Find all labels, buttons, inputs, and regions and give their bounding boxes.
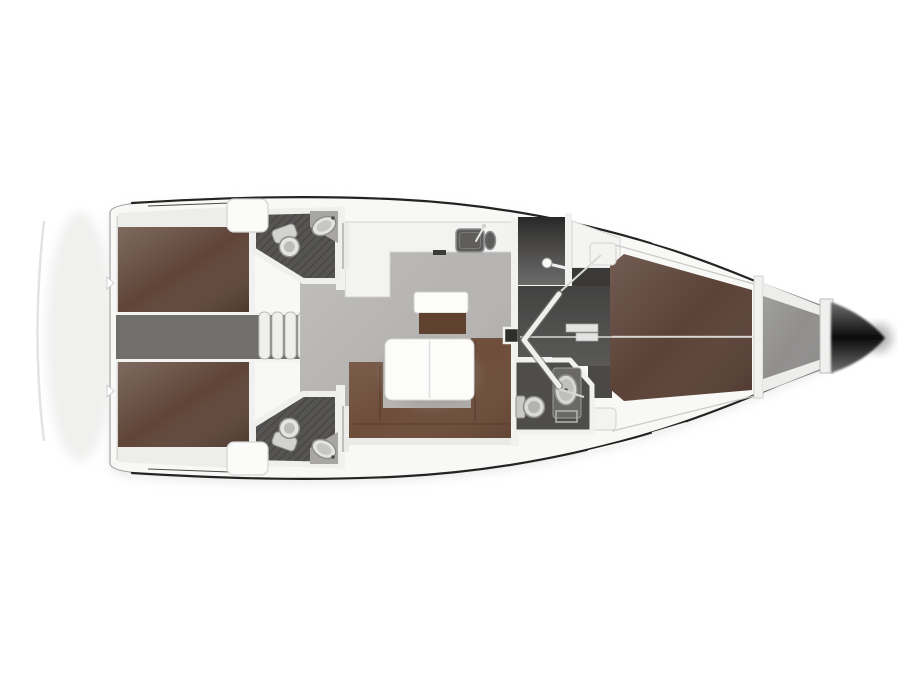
- sofa-base-trim: [349, 438, 511, 445]
- yacht-floorplan-canvas: [0, 0, 900, 675]
- wall-framed-panel: [504, 328, 519, 343]
- shower-floor-light: [518, 217, 565, 285]
- toilet-bowl-inner: [528, 401, 540, 413]
- toilet: [516, 396, 545, 418]
- galley-stove-strip: [433, 250, 446, 255]
- forward-bulkhead: [754, 276, 763, 398]
- step-tread: [259, 312, 270, 359]
- nav-seat-bench: [414, 292, 468, 334]
- bow-tip-cone: [831, 302, 885, 373]
- step-tread: [285, 312, 296, 359]
- deck-hatch-bottom: [227, 442, 268, 475]
- berth-shading-overlay: [118, 362, 250, 447]
- yacht-floorplan-svg: [0, 0, 900, 675]
- entry-step: [566, 324, 598, 332]
- galley-sink-round: [485, 232, 496, 250]
- dining-table: [380, 339, 480, 408]
- faucet-dot: [331, 216, 335, 220]
- wardrobe-dark-lower: [572, 268, 615, 288]
- shower-head-icon: [542, 258, 552, 268]
- bench-brown-base: [419, 313, 466, 334]
- stern-platform-haze: [46, 212, 114, 462]
- berth-shading-overlay: [118, 227, 250, 312]
- step-tread: [272, 312, 283, 359]
- shower-room: [518, 213, 572, 287]
- shower-wall: [565, 213, 572, 287]
- bench-white-top: [414, 292, 468, 313]
- forward-head: [512, 357, 592, 432]
- deck-hatch-top: [227, 199, 268, 232]
- stern-platform-arc: [38, 221, 45, 441]
- galley-faucet-base: [482, 224, 486, 228]
- faucet-dot: [331, 455, 335, 459]
